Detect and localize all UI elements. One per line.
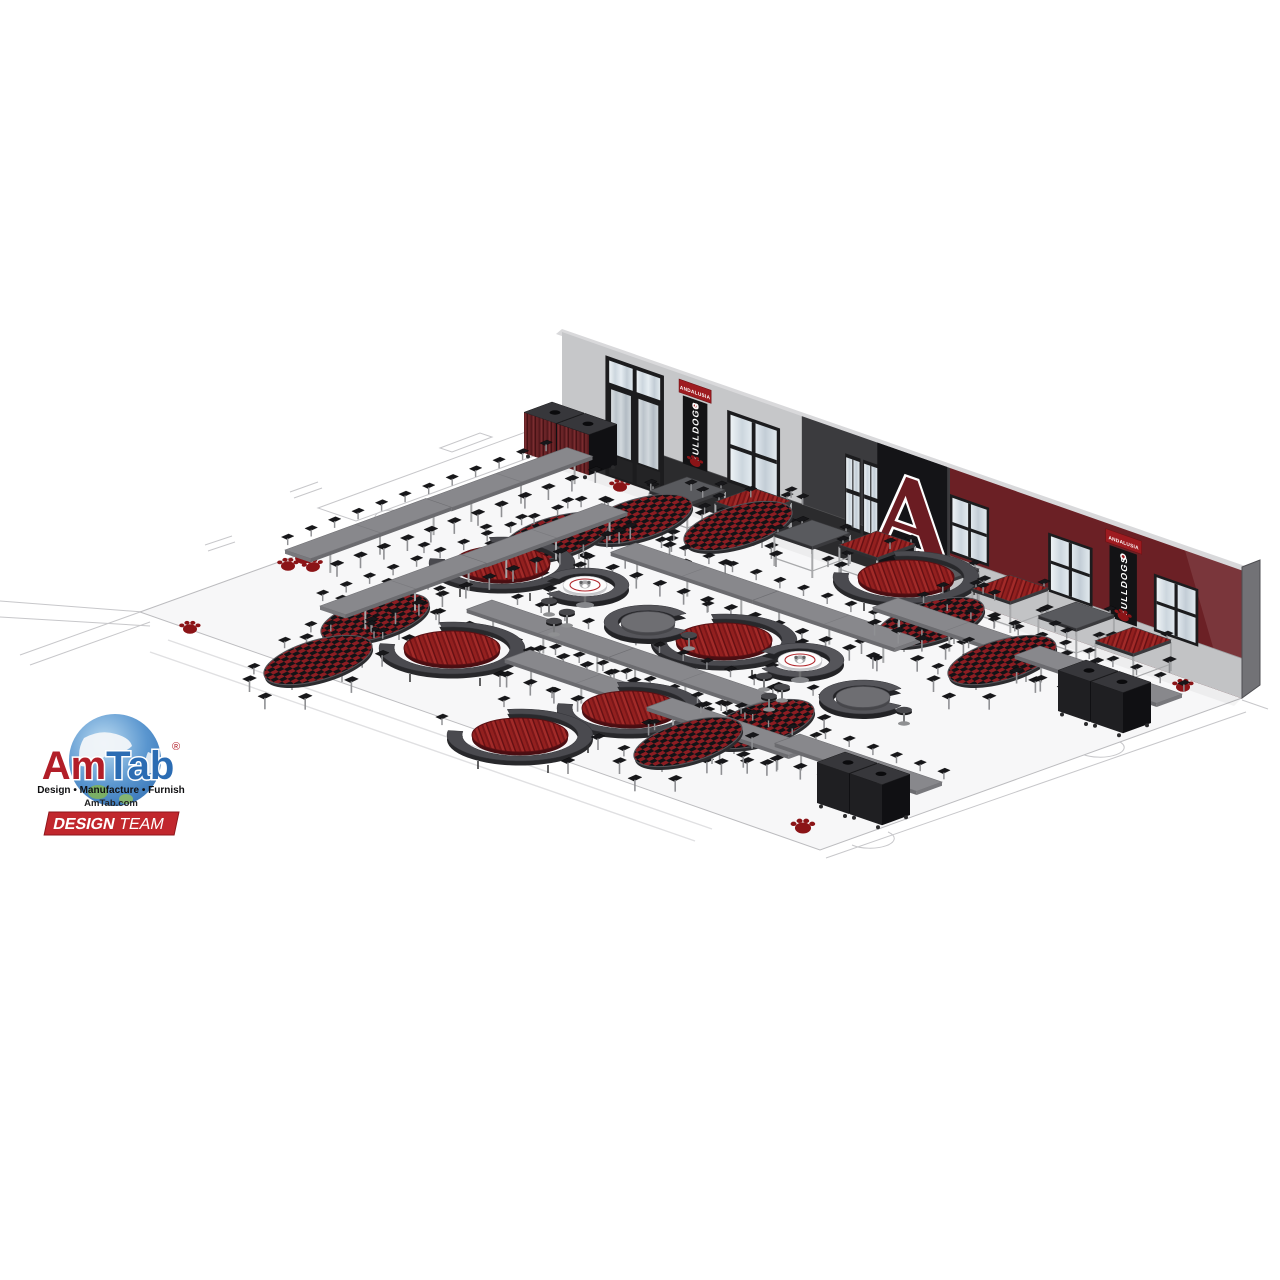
logo-wordmark: AmTab (42, 744, 175, 788)
logo-website: AmTab.com (84, 798, 138, 809)
window-narrow (845, 453, 860, 533)
cafeteria-rendering: A ANDALUSIA BULLDOGS ANDALUSIA BULLDOGS (0, 0, 1280, 1280)
design-team-badge: DESIGN TEAM (44, 812, 179, 835)
render-scene: A ANDALUSIA BULLDOGS ANDALUSIA BULLDOGS (0, 0, 1280, 1280)
logo-tagline: Design • Manufacture • Furnish (37, 785, 185, 796)
bulldogs-banner: ANDALUSIA BULLDOGS (679, 379, 711, 473)
badge-team-label: TEAM (118, 815, 166, 833)
banner-team-name: BULLDOGS (691, 400, 700, 464)
bulldogs-banner: ANDALUSIA BULLDOGS (1106, 529, 1142, 629)
registered-mark: ® (172, 741, 180, 753)
wall-end-column (1242, 560, 1260, 698)
badge-design-label: DESIGN (52, 815, 117, 833)
